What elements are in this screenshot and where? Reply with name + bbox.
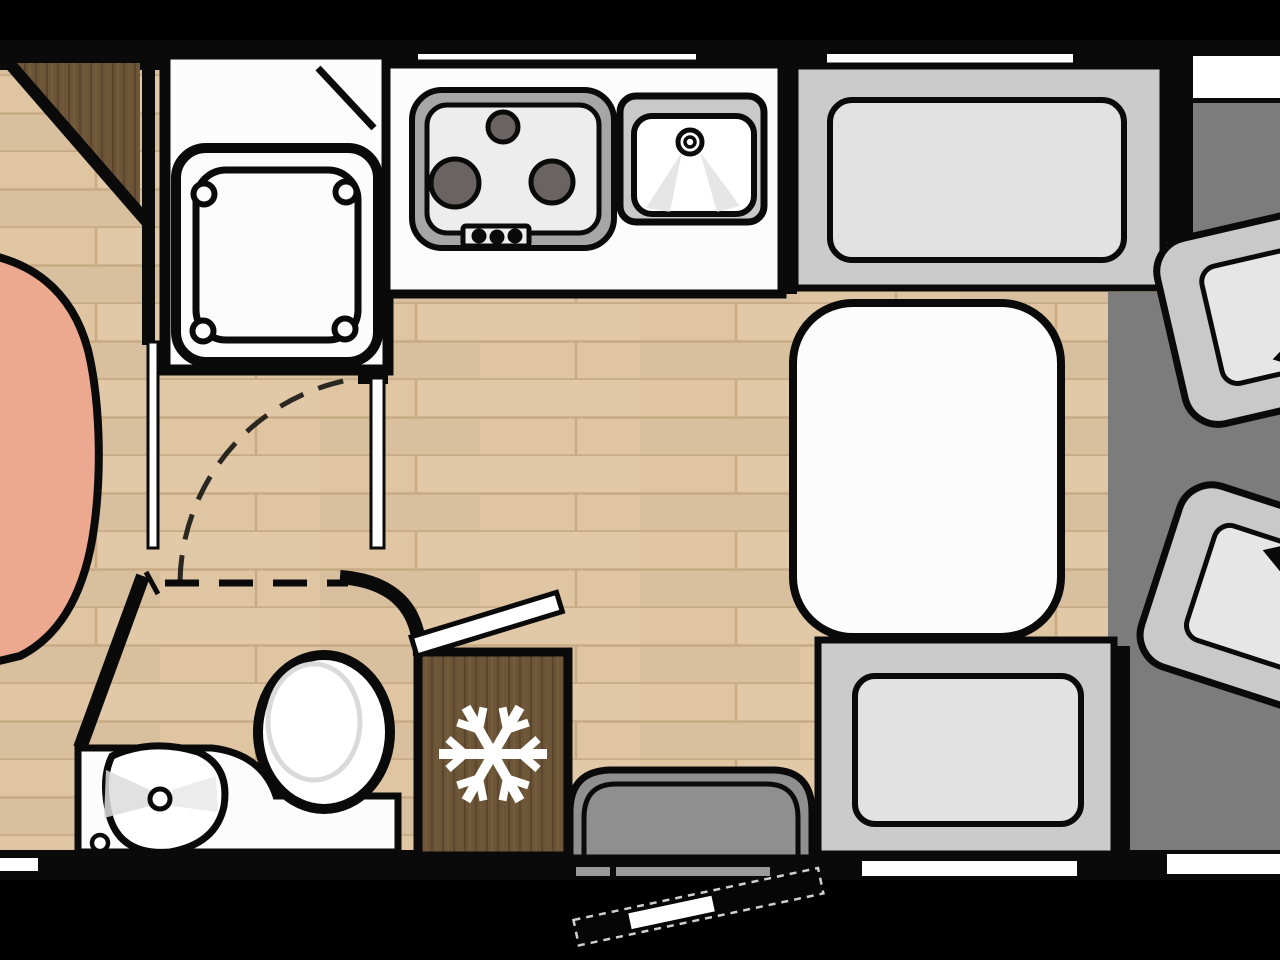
burner-left [431, 159, 479, 207]
dinette-table [793, 303, 1061, 637]
rear-seat-foot-strip-1 [576, 867, 610, 876]
wall-stub-top-right [1163, 54, 1193, 242]
kitchen-sink [620, 96, 764, 222]
toilet [258, 655, 390, 809]
tray-corner-circle [193, 321, 214, 342]
burner-small [488, 112, 518, 142]
partition-slide-track [148, 342, 158, 548]
bench-front-cushion [830, 100, 1124, 260]
burner-right [531, 161, 573, 203]
counter-drain [92, 835, 108, 851]
gas-hob [412, 90, 614, 248]
faucet-outer [678, 130, 702, 154]
cab-door-strip [1167, 854, 1280, 874]
tray-corner-circle [335, 319, 356, 340]
floorplan-canvas [0, 0, 1280, 960]
cab-strip-edge [1193, 98, 1280, 103]
cab-windshield-strip [1193, 56, 1280, 102]
hob-knob [508, 229, 523, 244]
tray-corner-circle [336, 182, 357, 203]
bench-rear-cushion [855, 676, 1081, 824]
kitchen-block [386, 64, 782, 294]
tray-corner-circle [194, 184, 215, 205]
basin-drain [150, 789, 170, 809]
rear-seat-foot-strip-2 [616, 867, 770, 876]
rear-seat [570, 770, 812, 858]
hob-knob [490, 230, 505, 245]
floorplan-svg [0, 0, 1280, 960]
bottom-left-window [0, 858, 38, 871]
hob-knob [472, 229, 487, 244]
wall-shower-left [142, 63, 155, 345]
door-leaf-open [371, 378, 384, 548]
shower-cubicle [165, 54, 388, 370]
entry-doorway-strip [862, 861, 1077, 876]
